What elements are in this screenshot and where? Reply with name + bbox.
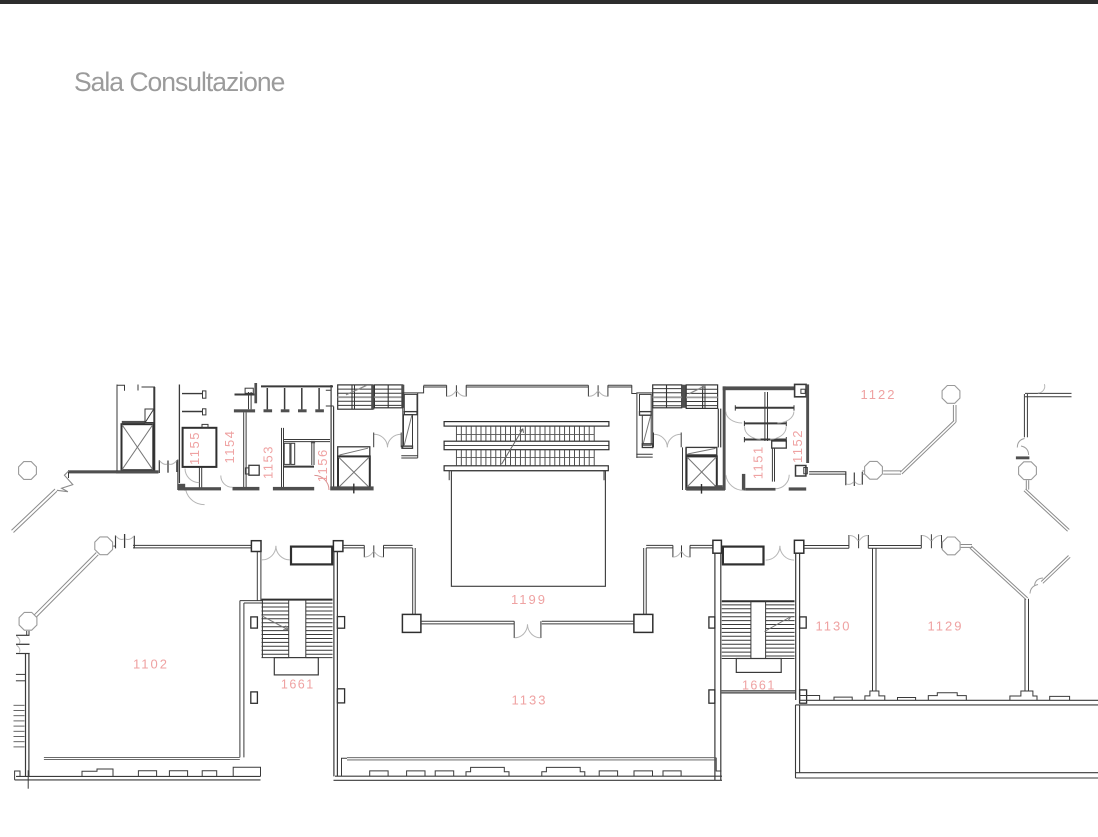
svg-text:1151: 1151 xyxy=(751,445,766,479)
svg-text:1153: 1153 xyxy=(261,445,276,479)
svg-text:1102: 1102 xyxy=(133,657,169,672)
svg-text:1152: 1152 xyxy=(790,429,805,463)
svg-text:1130: 1130 xyxy=(816,619,852,634)
svg-text:1156: 1156 xyxy=(315,448,330,482)
svg-text:1154: 1154 xyxy=(222,430,237,464)
svg-text:1155: 1155 xyxy=(187,431,202,465)
svg-text:1122: 1122 xyxy=(861,387,897,402)
svg-text:1199: 1199 xyxy=(511,592,547,607)
svg-text:1661: 1661 xyxy=(281,678,315,692)
svg-text:1133: 1133 xyxy=(512,693,548,708)
svg-text:1129: 1129 xyxy=(928,619,964,634)
svg-text:1661: 1661 xyxy=(742,679,776,693)
